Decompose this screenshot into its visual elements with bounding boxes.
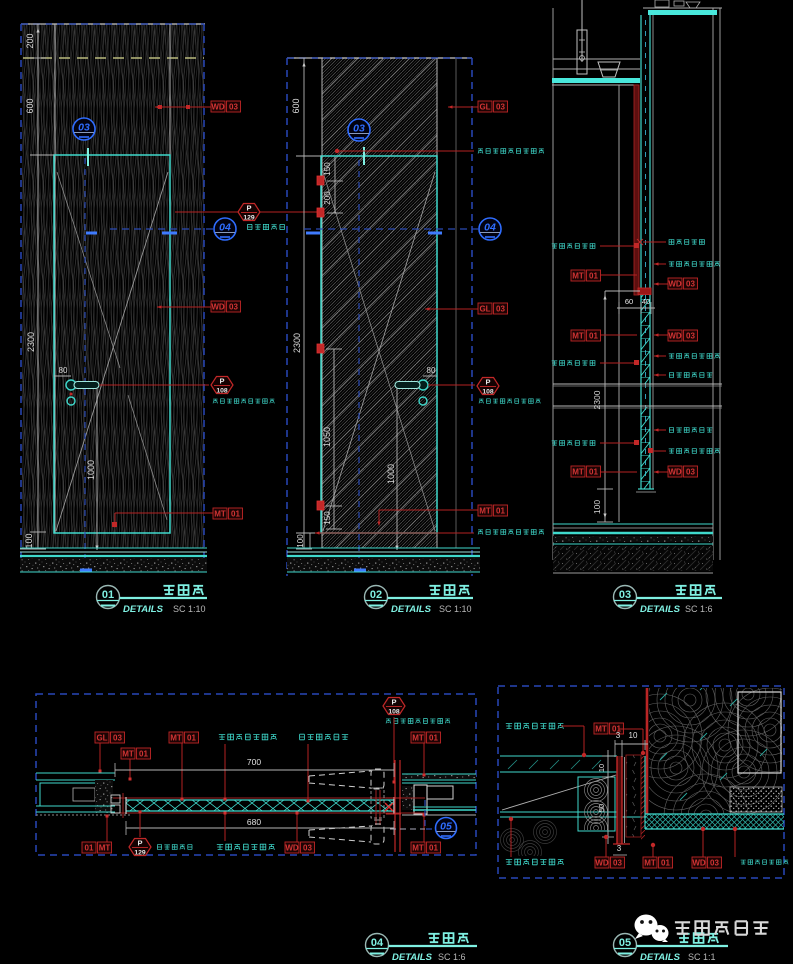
svg-text:03: 03 bbox=[496, 305, 505, 314]
svg-text:1050: 1050 bbox=[322, 427, 332, 447]
svg-text:680: 680 bbox=[247, 817, 261, 827]
svg-text:80: 80 bbox=[59, 366, 68, 375]
svg-text:03: 03 bbox=[686, 468, 695, 477]
svg-text:DETAILS: DETAILS bbox=[391, 604, 432, 615]
svg-text:03: 03 bbox=[113, 734, 122, 743]
svg-text:DETAILS: DETAILS bbox=[392, 952, 433, 963]
svg-text:MT: MT bbox=[595, 725, 607, 734]
svg-text:03: 03 bbox=[619, 589, 631, 601]
svg-text:WD: WD bbox=[285, 844, 299, 853]
svg-text:700: 700 bbox=[247, 757, 261, 767]
svg-text:200: 200 bbox=[323, 191, 332, 205]
svg-text:200: 200 bbox=[25, 33, 35, 48]
svg-text:03: 03 bbox=[78, 122, 90, 134]
svg-text:150: 150 bbox=[323, 511, 332, 525]
svg-text:DETAILS: DETAILS bbox=[123, 604, 164, 615]
svg-text:2300: 2300 bbox=[292, 333, 302, 353]
svg-text:04: 04 bbox=[371, 937, 384, 949]
svg-text:80: 80 bbox=[427, 366, 436, 375]
svg-text:3: 3 bbox=[616, 731, 621, 740]
svg-text:03: 03 bbox=[229, 103, 238, 112]
svg-text:WD: WD bbox=[668, 468, 682, 477]
svg-text:SC 1:10: SC 1:10 bbox=[439, 604, 472, 614]
svg-text:04: 04 bbox=[484, 222, 496, 234]
svg-text:2300: 2300 bbox=[592, 390, 602, 409]
svg-text:WD: WD bbox=[668, 280, 682, 289]
svg-text:03: 03 bbox=[686, 280, 695, 289]
svg-text:50: 50 bbox=[597, 804, 606, 812]
svg-text:01: 01 bbox=[661, 859, 670, 868]
svg-text:01: 01 bbox=[139, 750, 148, 759]
svg-text:600: 600 bbox=[25, 98, 35, 113]
svg-text:108: 108 bbox=[482, 389, 494, 396]
svg-text:SC 1:1: SC 1:1 bbox=[688, 952, 716, 962]
svg-text:WD: WD bbox=[211, 303, 225, 312]
svg-text:MT: MT bbox=[214, 510, 226, 519]
svg-text:MT: MT bbox=[644, 859, 656, 868]
svg-text:GL: GL bbox=[479, 305, 490, 314]
svg-text:100: 100 bbox=[296, 534, 305, 548]
svg-text:P: P bbox=[485, 378, 490, 387]
svg-text:60: 60 bbox=[625, 297, 633, 306]
svg-text:01: 01 bbox=[102, 589, 114, 601]
svg-text:04: 04 bbox=[219, 222, 231, 234]
svg-text:WD: WD bbox=[595, 859, 609, 868]
svg-text:MT: MT bbox=[479, 507, 491, 516]
svg-text:MT: MT bbox=[572, 272, 584, 281]
svg-text:1000: 1000 bbox=[86, 460, 96, 480]
svg-text:10: 10 bbox=[597, 764, 606, 772]
svg-text:P: P bbox=[137, 839, 142, 848]
svg-text:DETAILS: DETAILS bbox=[640, 604, 681, 615]
svg-text:MT: MT bbox=[572, 332, 584, 341]
svg-text:WD: WD bbox=[211, 103, 225, 112]
svg-text:100: 100 bbox=[24, 533, 34, 548]
svg-text:P: P bbox=[391, 698, 396, 707]
svg-text:WD: WD bbox=[668, 332, 682, 341]
svg-text:129: 129 bbox=[134, 850, 146, 857]
svg-text:03: 03 bbox=[686, 332, 695, 341]
svg-text:05: 05 bbox=[440, 821, 452, 833]
svg-text:03: 03 bbox=[496, 103, 505, 112]
svg-text:03: 03 bbox=[229, 303, 238, 312]
svg-text:05: 05 bbox=[619, 937, 631, 949]
svg-text:01: 01 bbox=[187, 734, 196, 743]
svg-text:3: 3 bbox=[617, 844, 622, 853]
svg-text:01: 01 bbox=[231, 510, 240, 519]
svg-text:129: 129 bbox=[243, 215, 255, 222]
svg-text:02: 02 bbox=[370, 589, 382, 601]
svg-text:01: 01 bbox=[589, 332, 598, 341]
svg-text:P: P bbox=[219, 377, 224, 386]
svg-text:03: 03 bbox=[353, 123, 365, 135]
svg-text:01: 01 bbox=[429, 734, 438, 743]
svg-text:40: 40 bbox=[642, 297, 650, 306]
svg-text:1000: 1000 bbox=[386, 464, 396, 484]
svg-text:03: 03 bbox=[303, 844, 312, 853]
svg-text:600: 600 bbox=[291, 98, 301, 113]
svg-text:01: 01 bbox=[589, 468, 598, 477]
svg-text:01: 01 bbox=[496, 507, 505, 516]
svg-text:01: 01 bbox=[85, 844, 94, 853]
svg-text:SC 1:10: SC 1:10 bbox=[173, 604, 206, 614]
svg-text:MT: MT bbox=[170, 734, 182, 743]
svg-text:SC 1:6: SC 1:6 bbox=[685, 604, 713, 614]
svg-text:MT: MT bbox=[412, 734, 424, 743]
svg-text:01: 01 bbox=[429, 844, 438, 853]
svg-text:MT: MT bbox=[99, 844, 111, 853]
svg-text:2300: 2300 bbox=[26, 332, 36, 352]
svg-text:GL: GL bbox=[479, 103, 490, 112]
svg-text:MT: MT bbox=[122, 750, 134, 759]
svg-text:01: 01 bbox=[589, 272, 598, 281]
svg-text:100: 100 bbox=[592, 500, 602, 514]
svg-text:DETAILS: DETAILS bbox=[640, 952, 681, 963]
svg-text:03: 03 bbox=[613, 859, 622, 868]
svg-text:108: 108 bbox=[216, 388, 228, 395]
svg-text:10: 10 bbox=[629, 731, 638, 740]
svg-text:108: 108 bbox=[388, 709, 400, 716]
svg-text:MT: MT bbox=[572, 468, 584, 477]
svg-text:WD: WD bbox=[692, 859, 706, 868]
svg-text:GL: GL bbox=[96, 734, 107, 743]
svg-text:MT: MT bbox=[412, 844, 424, 853]
svg-text:03: 03 bbox=[710, 859, 719, 868]
svg-text:SC 1:6: SC 1:6 bbox=[438, 952, 466, 962]
svg-text:150: 150 bbox=[323, 162, 332, 176]
svg-text:P: P bbox=[246, 204, 251, 213]
